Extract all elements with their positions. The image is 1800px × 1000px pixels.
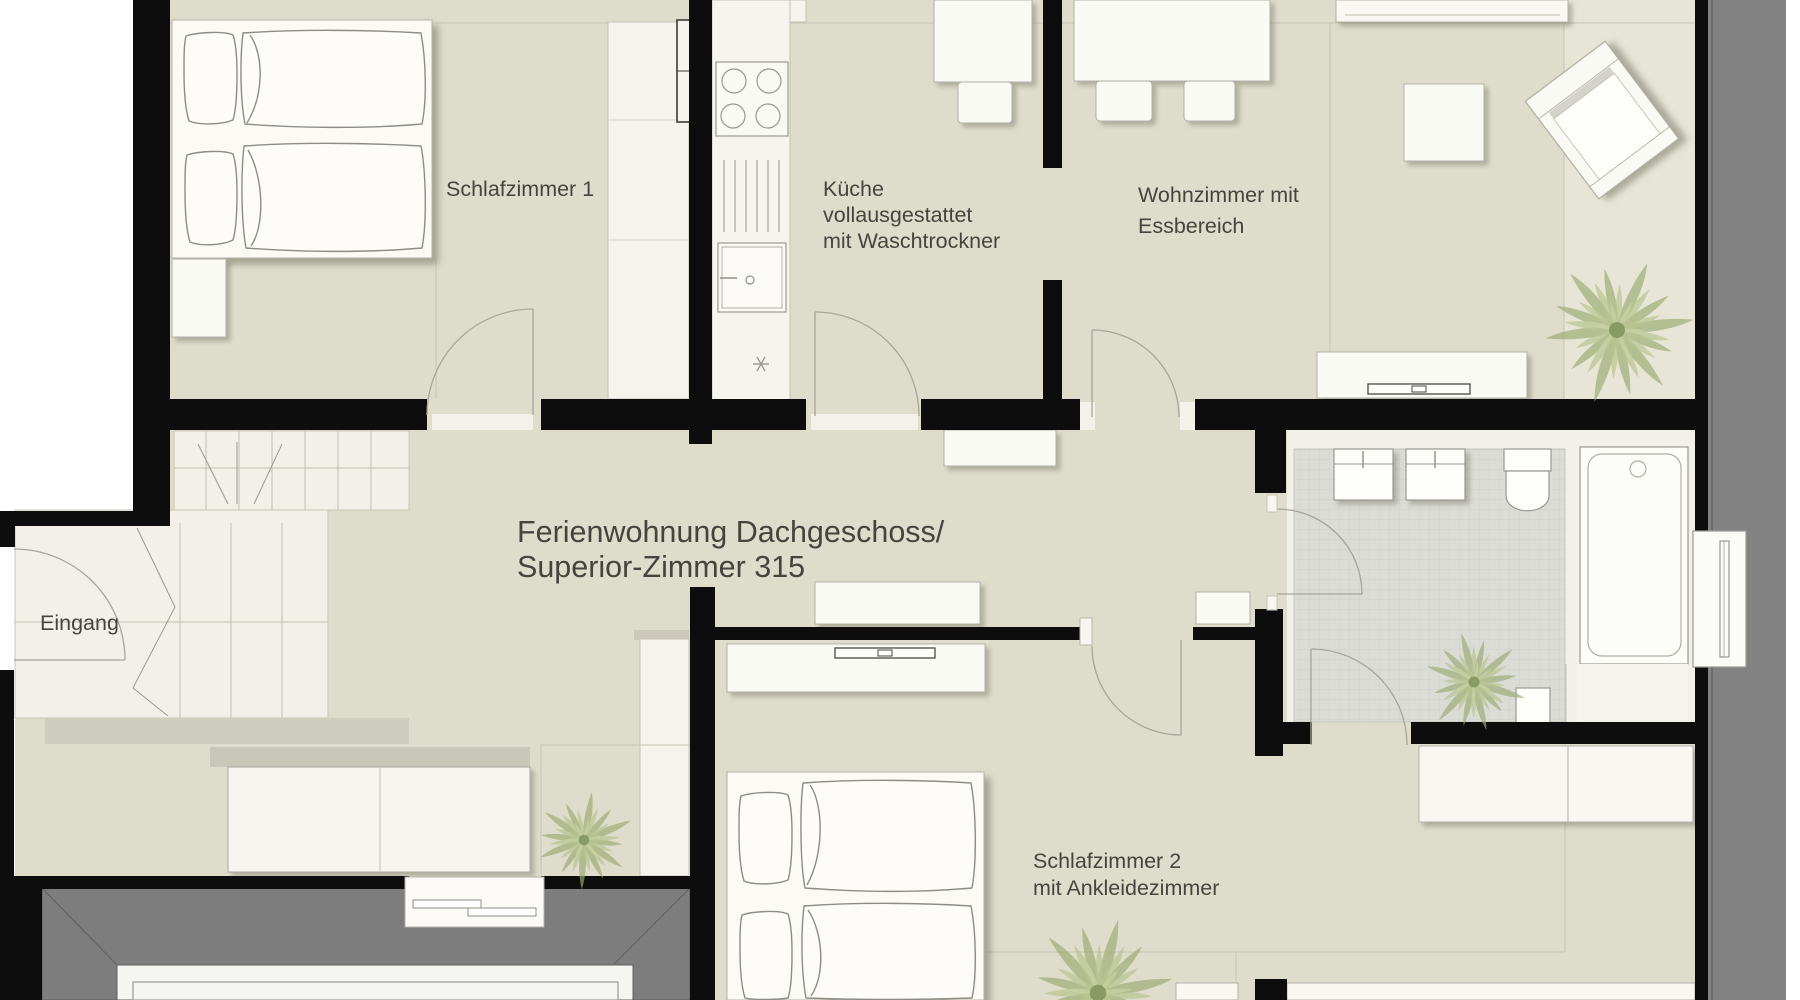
svg-text:Superior-Zimmer 315: Superior-Zimmer 315 xyxy=(517,550,805,584)
svg-text:Eingang: Eingang xyxy=(40,611,119,635)
svg-text:Küche: Küche xyxy=(823,177,884,201)
svg-text:Essbereich: Essbereich xyxy=(1138,214,1244,238)
svg-text:Schlafzimmer 2: Schlafzimmer 2 xyxy=(1033,849,1181,873)
svg-text:Wohnzimmer mit: Wohnzimmer mit xyxy=(1138,183,1299,207)
svg-text:vollausgestattet: vollausgestattet xyxy=(823,203,972,227)
svg-text:mit Ankleidezimmer: mit Ankleidezimmer xyxy=(1033,876,1219,900)
svg-text:Schlafzimmer 1: Schlafzimmer 1 xyxy=(446,177,594,201)
svg-text:Ferienwohnung Dachgeschoss/: Ferienwohnung Dachgeschoss/ xyxy=(517,515,945,549)
svg-text:mit Waschtrockner: mit Waschtrockner xyxy=(823,229,1000,253)
